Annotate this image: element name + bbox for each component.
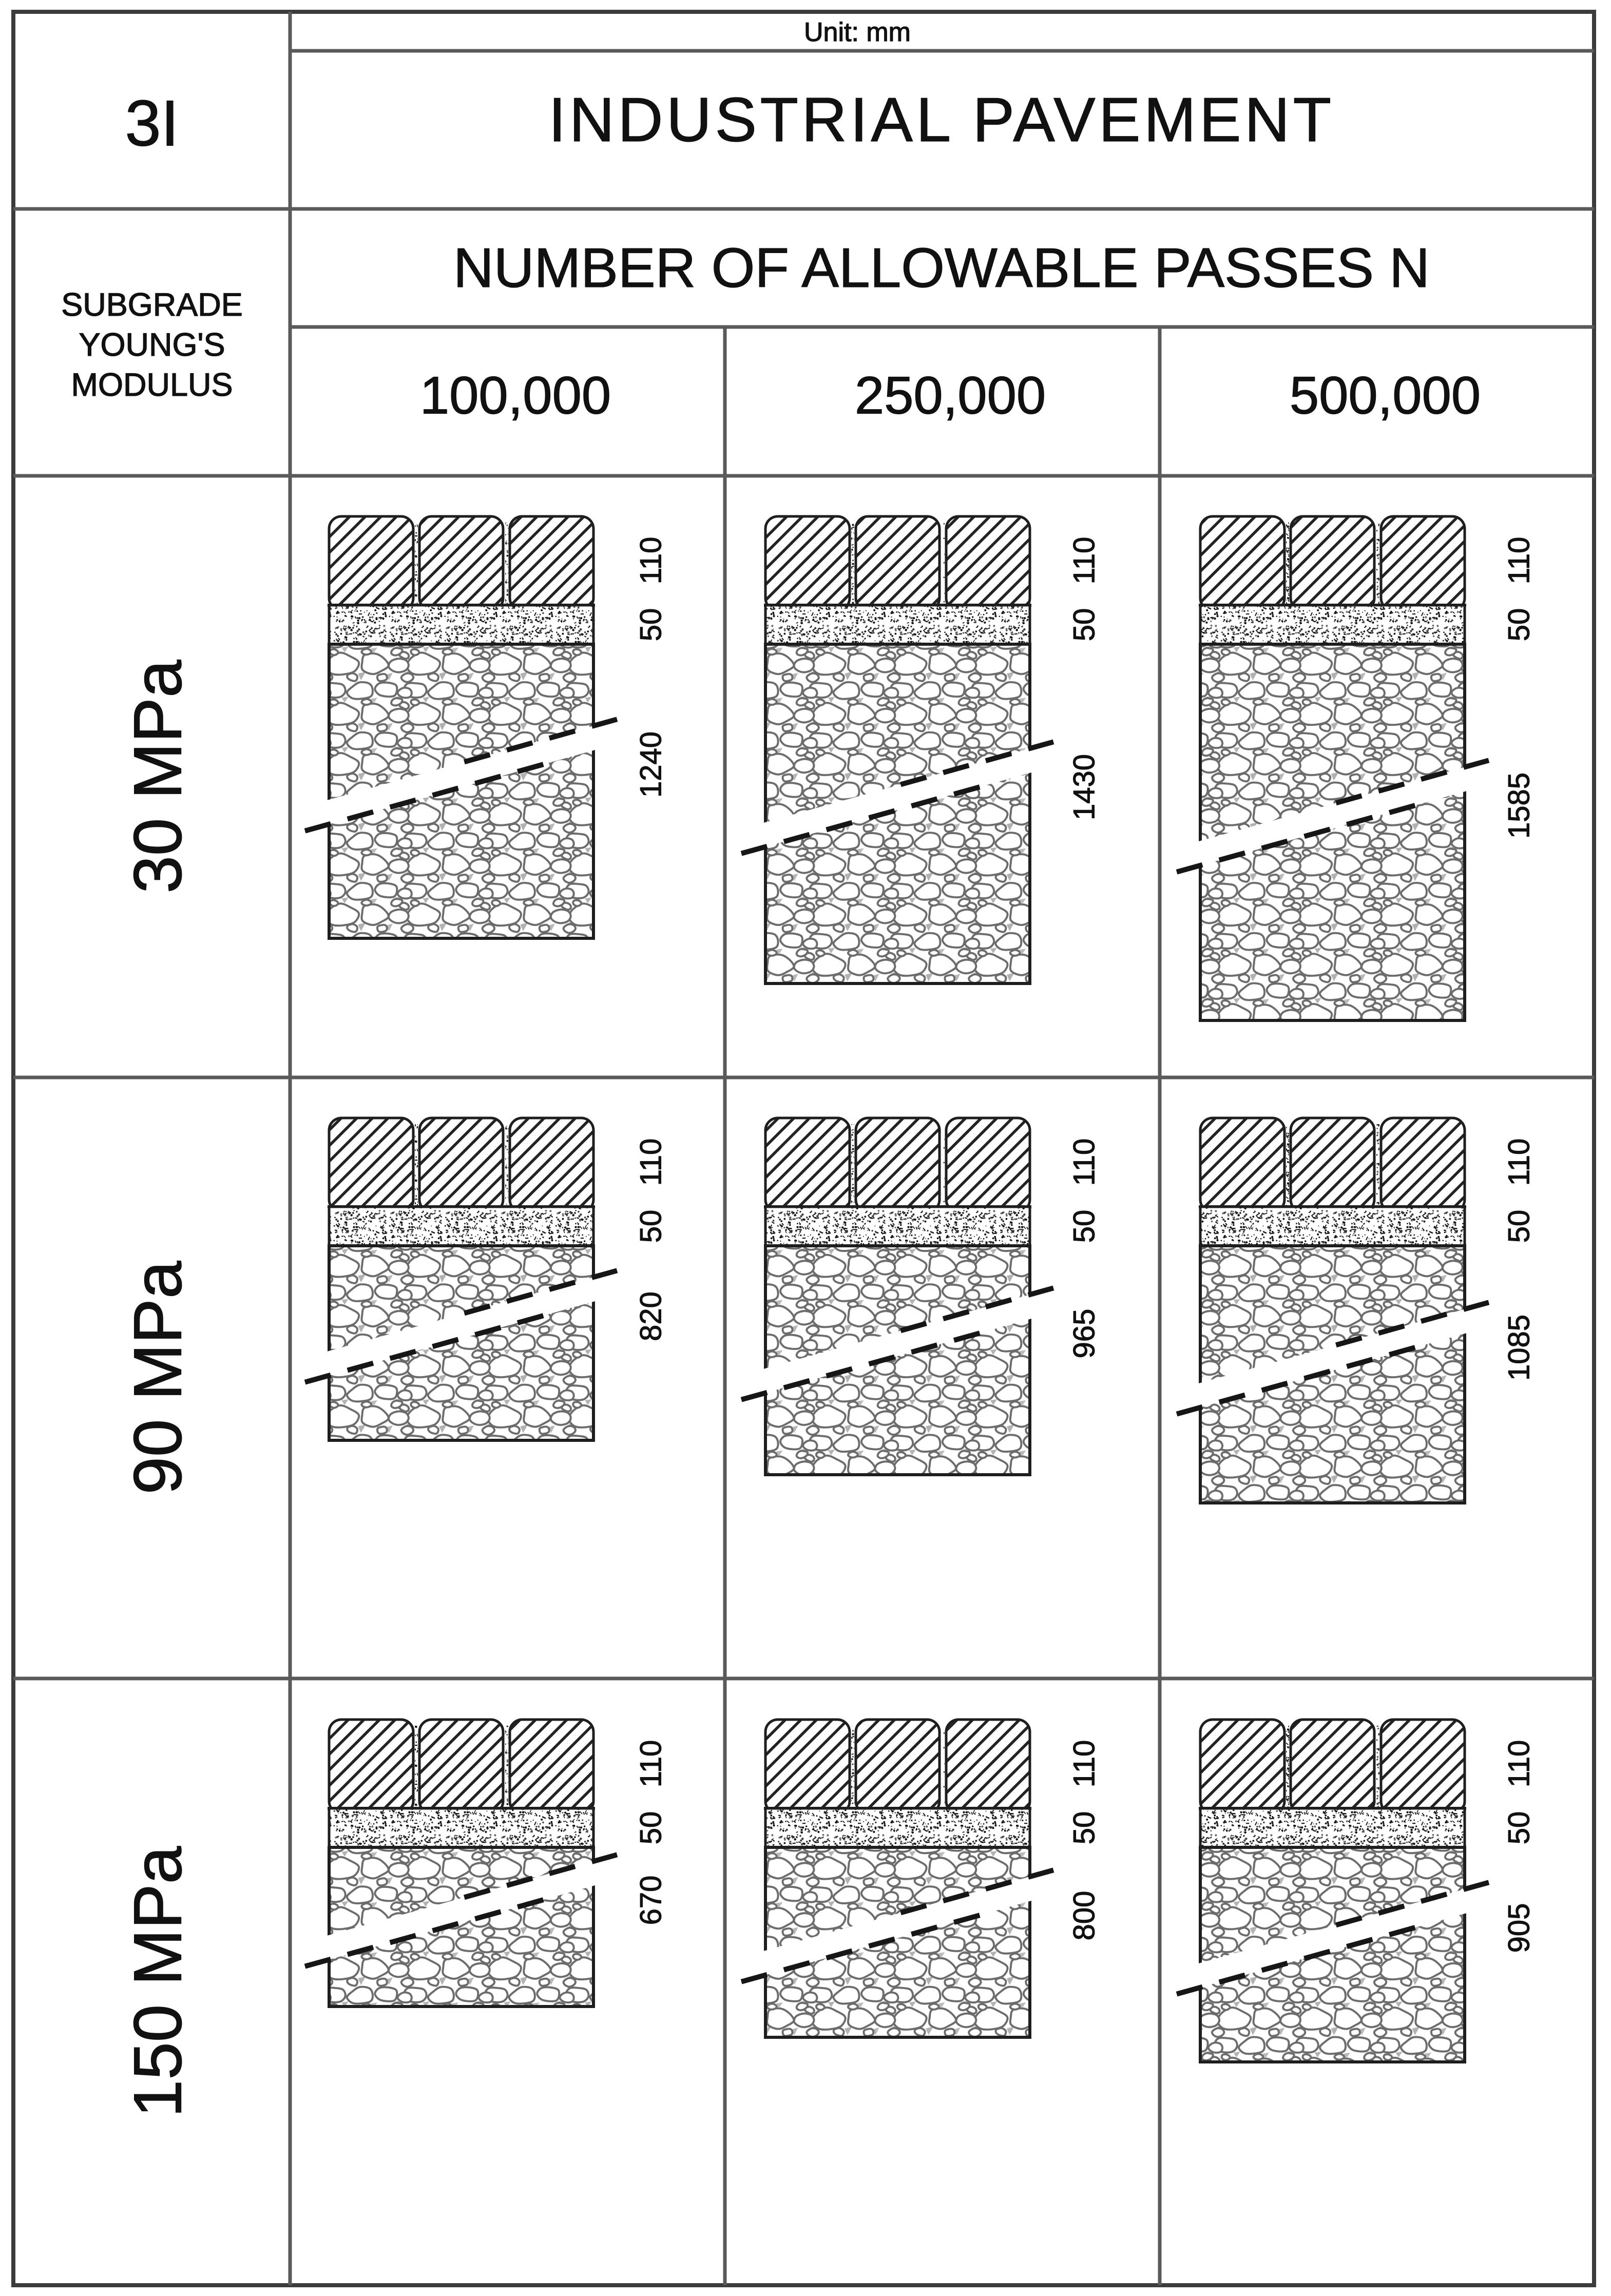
svg-text:50: 50 <box>1503 1811 1536 1845</box>
svg-text:150 MPa: 150 MPa <box>120 1846 196 2117</box>
svg-text:1240: 1240 <box>635 731 668 798</box>
svg-text:50: 50 <box>1068 1811 1101 1845</box>
svg-text:110: 110 <box>1503 537 1536 584</box>
svg-text:670: 670 <box>635 1876 668 1925</box>
svg-text:50: 50 <box>635 1210 668 1243</box>
svg-text:50: 50 <box>1503 608 1536 642</box>
svg-text:800: 800 <box>1068 1891 1101 1941</box>
svg-text:1585: 1585 <box>1503 773 1536 839</box>
svg-text:50: 50 <box>1068 1210 1101 1243</box>
svg-text:INDUSTRIAL PAVEMENT: INDUSTRIAL PAVEMENT <box>548 85 1334 155</box>
svg-text:905: 905 <box>1503 1903 1536 1953</box>
svg-text:30 MPa: 30 MPa <box>120 660 196 893</box>
svg-text:SUBGRADE: SUBGRADE <box>61 287 243 323</box>
svg-text:110: 110 <box>635 1740 668 1787</box>
svg-text:50: 50 <box>1503 1210 1536 1243</box>
svg-text:MODULUS: MODULUS <box>71 367 233 403</box>
svg-text:110: 110 <box>1068 1740 1101 1787</box>
svg-text:3I: 3I <box>125 87 179 160</box>
svg-text:500,000: 500,000 <box>1290 366 1481 425</box>
svg-text:110: 110 <box>635 537 668 584</box>
svg-text:250,000: 250,000 <box>855 366 1046 425</box>
svg-text:110: 110 <box>1503 1740 1536 1787</box>
svg-text:Unit: mm: Unit: mm <box>804 17 911 47</box>
svg-text:110: 110 <box>635 1139 668 1186</box>
svg-text:820: 820 <box>635 1291 668 1341</box>
svg-text:1085: 1085 <box>1503 1315 1536 1381</box>
svg-text:1430: 1430 <box>1068 754 1101 820</box>
svg-text:50: 50 <box>1068 608 1101 642</box>
svg-text:50: 50 <box>635 1811 668 1845</box>
svg-text:50: 50 <box>635 608 668 642</box>
svg-text:90 MPa: 90 MPa <box>120 1261 196 1494</box>
svg-text:100,000: 100,000 <box>420 366 611 425</box>
svg-text:110: 110 <box>1068 1139 1101 1186</box>
svg-text:YOUNG'S: YOUNG'S <box>79 327 225 363</box>
svg-text:NUMBER OF ALLOWABLE PASSES N: NUMBER OF ALLOWABLE PASSES N <box>453 237 1430 299</box>
svg-text:110: 110 <box>1068 537 1101 584</box>
svg-text:965: 965 <box>1068 1309 1101 1359</box>
svg-text:110: 110 <box>1503 1139 1536 1186</box>
